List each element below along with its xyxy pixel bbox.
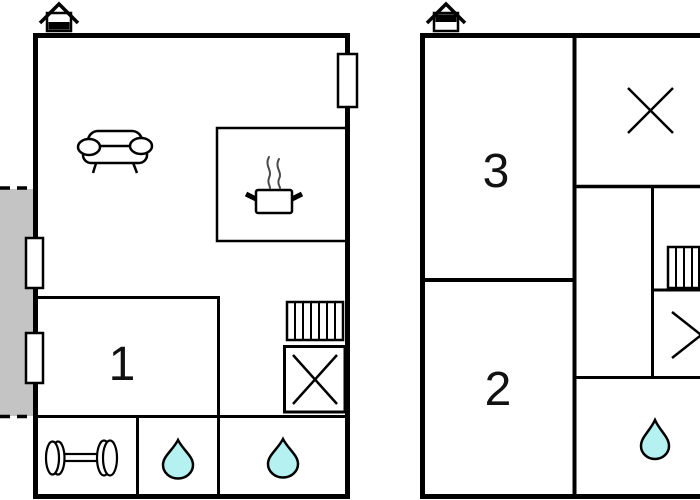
cooking-pot-icon <box>246 157 302 213</box>
ground-floor-outer-wall <box>36 36 348 497</box>
room-label-1: 1 <box>109 338 136 391</box>
cross-symbol <box>628 88 673 133</box>
window-marker <box>26 333 43 383</box>
kitchen-area <box>217 128 347 241</box>
entrance-house-icon <box>427 4 465 31</box>
steam-line <box>277 159 280 188</box>
sofa-armrest <box>130 138 152 154</box>
dumbbell-disc <box>46 442 59 475</box>
dumbbell-icon <box>46 441 117 476</box>
floor-plan-canvas: 1 3 2 <box>0 0 700 500</box>
window-marker <box>26 238 43 288</box>
entrance-house-icon <box>40 4 78 31</box>
stairs-icon <box>287 302 343 340</box>
house-body-fill <box>436 15 457 23</box>
sofa-armrest <box>78 139 100 155</box>
cross-symbol <box>672 312 700 358</box>
room-label-3: 3 <box>483 145 510 198</box>
room-label-2: 2 <box>485 363 512 416</box>
pot-body <box>256 190 292 213</box>
sofa-icon <box>78 131 152 173</box>
shower-cross-icon <box>285 347 346 413</box>
stairs-icon <box>668 247 700 288</box>
house-body-fill <box>49 22 70 30</box>
window-marker <box>338 54 357 107</box>
water-drop-icon <box>268 439 298 477</box>
cross-line <box>672 332 700 358</box>
steam-line <box>267 157 270 188</box>
water-drop-icon <box>641 420 669 459</box>
dumbbell-disc <box>103 441 117 476</box>
cross-line <box>672 312 700 338</box>
floor-plan-svg: 1 3 2 <box>0 0 700 500</box>
water-drop-icon <box>163 440 193 479</box>
